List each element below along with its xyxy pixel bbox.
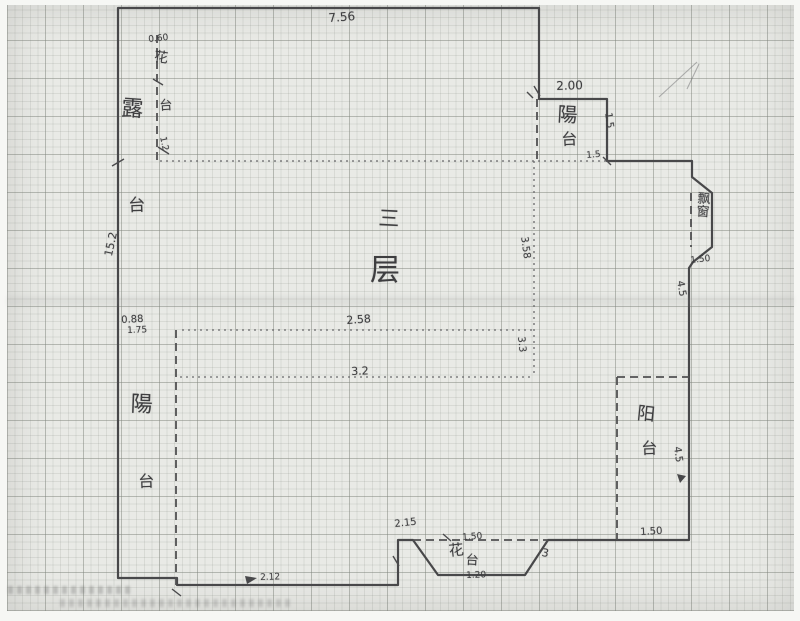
- dim-flowerbed-top: 1.50: [462, 533, 483, 543]
- dim-top-width: 7.56: [328, 10, 355, 24]
- dim-interior-v1: 3.58: [518, 236, 531, 259]
- floor-label-char1: 三: [378, 208, 400, 230]
- dim-interior-v2: 3.3: [515, 336, 527, 353]
- dim-balcony-tr-corner: 1.5: [586, 151, 601, 161]
- dim-right-wall-lower: 4.5: [671, 446, 683, 463]
- dim-left-b: 1.75: [127, 326, 147, 336]
- room-planter-left-char1: 花: [153, 50, 169, 66]
- room-terrace-char2: 台: [128, 197, 146, 215]
- floor-plan-sketch: 7.56 0.60 花 台 1.2 露 台 15.2 0.88 1.75 2.0…: [0, 0, 800, 621]
- dim-interior-h1: 2.58: [346, 313, 371, 326]
- dim-balcony-tr-depth: 1.5: [602, 112, 614, 129]
- room-flowerbed-char2: 台: [465, 554, 479, 568]
- dim-planter-length: 1.2: [157, 136, 169, 152]
- room-balcony-br-char1: 阳: [636, 405, 656, 425]
- dim-bottom-wall: 2.12: [260, 573, 280, 583]
- dim-left-a: 0.88: [121, 315, 144, 326]
- room-balcony-tr-char2: 台: [561, 131, 578, 148]
- room-planter-left-char2: 台: [159, 99, 173, 113]
- floor-label-char2: 层: [370, 256, 400, 286]
- room-balcony-br-char2: 台: [641, 440, 658, 457]
- room-balcony-tr-char1: 陽: [557, 104, 578, 125]
- room-balcony-bl-char1: 陽: [130, 394, 153, 417]
- room-flowerbed-char1: 花: [448, 542, 465, 558]
- room-terrace-char1: 露: [120, 98, 143, 121]
- room-balcony-bl-char2: 台: [138, 473, 155, 490]
- dim-balcony-tr-width: 2.00: [556, 79, 583, 92]
- dim-flowerbed-bottom: 1.20: [466, 571, 486, 581]
- dim-interior-h2: 3.2: [351, 365, 369, 377]
- dim-right-wall-upper: 4.5: [674, 280, 687, 297]
- room-bay-window-label: 飘窗: [694, 191, 709, 218]
- dim-balcony-br: 1.50: [640, 527, 663, 538]
